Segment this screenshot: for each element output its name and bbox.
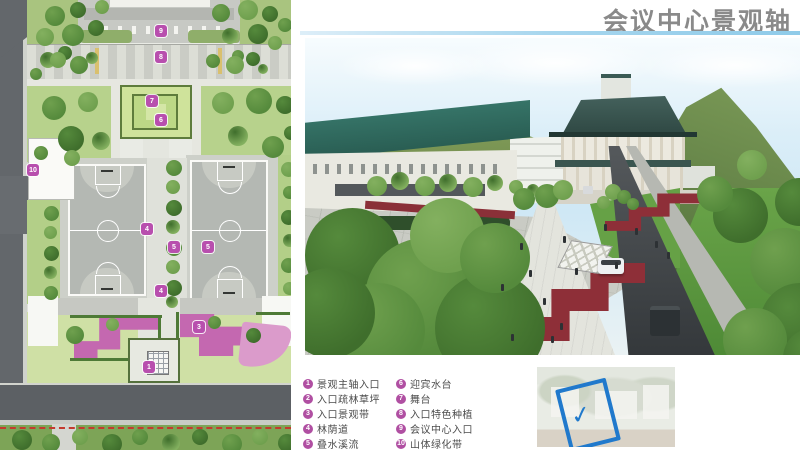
plan-markers-layer: 987610455431 [0, 0, 291, 450]
pedestrian [563, 236, 566, 243]
legend-item: 2入口疏林草坪 [303, 393, 380, 404]
legend-item: 1景观主轴入口 [303, 378, 380, 389]
title-underline [300, 31, 800, 35]
pedestrian [615, 262, 618, 269]
legend-item: 7舞台 [396, 393, 473, 404]
plan-marker: 4 [155, 285, 167, 297]
plan-marker: 7 [146, 95, 158, 107]
legend-item-label: 迎宾水台 [410, 376, 452, 391]
legend-number-badge: 2 [303, 394, 313, 404]
pedestrian [655, 241, 658, 248]
pedestrian [520, 243, 523, 250]
pedestrian [511, 334, 514, 341]
legend-item-label: 入口景观带 [317, 406, 370, 421]
legend-item-label: 林荫道 [317, 421, 349, 436]
legend-item-label: 会议中心入口 [410, 421, 473, 436]
plan-marker: 10 [27, 164, 39, 176]
legend-number-badge: 9 [396, 424, 406, 434]
site-plan: 987610455431 [0, 0, 291, 450]
pedestrian [667, 252, 670, 259]
legend-item: 3入口景观带 [303, 408, 380, 419]
render-view [305, 38, 800, 355]
plan-marker: 5 [168, 241, 180, 253]
legend-column-right: 6迎宾水台7舞台8入口特色种植9会议中心入口10山体绿化带 [396, 378, 473, 449]
legend-number-badge: 6 [396, 379, 406, 389]
legend-item: 10山体绿化带 [396, 438, 473, 449]
pedestrian [575, 268, 578, 275]
legend-item: 5叠水溪流 [303, 438, 380, 449]
locator-map: ✓ [537, 367, 675, 447]
legend-item-label: 山体绿化带 [410, 436, 463, 450]
pedestrian [551, 336, 554, 343]
legend-number-badge: 7 [396, 394, 406, 404]
plan-marker: 4 [141, 223, 153, 235]
plan-marker: 9 [155, 25, 167, 37]
legend: 1景观主轴入口2入口疏林草坪3入口景观带4林荫道5叠水溪流 6迎宾水台7舞台8入… [303, 378, 473, 449]
legend-number-badge: 10 [396, 439, 406, 449]
legend-item: 9会议中心入口 [396, 423, 473, 434]
legend-number-badge: 5 [303, 439, 313, 449]
legend-number-badge: 4 [303, 424, 313, 434]
legend-item-label: 入口疏林草坪 [317, 391, 380, 406]
plan-marker: 1 [143, 361, 155, 373]
legend-column-left: 1景观主轴入口2入口疏林草坪3入口景观带4林荫道5叠水溪流 [303, 378, 380, 449]
legend-item: 6迎宾水台 [396, 378, 473, 389]
pedestrian [529, 270, 532, 277]
legend-item-label: 舞台 [410, 391, 431, 406]
legend-number-badge: 8 [396, 409, 406, 419]
pedestrian [560, 323, 563, 330]
pedestrian [543, 298, 546, 305]
legend-number-badge: 3 [303, 409, 313, 419]
legend-number-badge: 1 [303, 379, 313, 389]
plan-marker: 8 [155, 51, 167, 63]
plan-marker: 3 [193, 321, 205, 333]
legend-item-label: 景观主轴入口 [317, 376, 380, 391]
plan-marker: 6 [155, 114, 167, 126]
render-people-layer [305, 38, 800, 355]
legend-item: 8入口特色种植 [396, 408, 473, 419]
pedestrian [635, 228, 638, 235]
pedestrian [501, 284, 504, 291]
presentation-page: 987610455431 会议中心景观轴 [0, 0, 800, 450]
legend-item-label: 叠水溪流 [317, 436, 359, 450]
pedestrian [604, 224, 607, 231]
legend-item: 4林荫道 [303, 423, 380, 434]
plan-boundary-dashed-line [0, 427, 291, 429]
locator-building [643, 385, 669, 419]
plan-marker: 5 [202, 241, 214, 253]
legend-item-label: 入口特色种植 [410, 406, 473, 421]
